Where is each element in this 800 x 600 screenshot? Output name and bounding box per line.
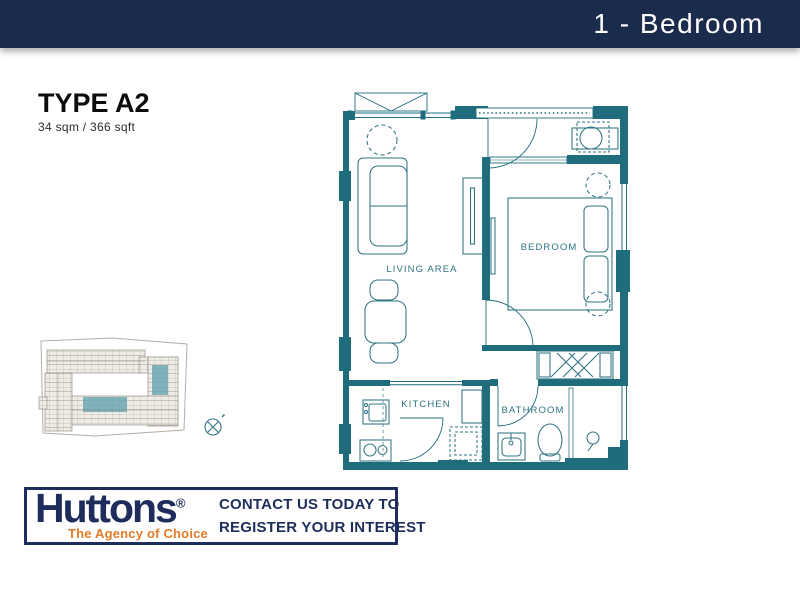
toilet [538, 424, 562, 461]
bedside-table [586, 173, 610, 197]
cta-line-1: CONTACT US TODAY TO [219, 493, 426, 516]
brand-name: Huttons® [35, 491, 211, 526]
kitchen-sink [360, 440, 391, 461]
contact-cta: CONTACT US TODAY TO REGISTER YOUR INTERE… [211, 493, 426, 540]
ceiling-fan [367, 125, 397, 155]
living-area-label: LIVING AREA [386, 264, 457, 275]
wardrobe [537, 351, 613, 379]
bedside-table [586, 292, 610, 316]
shower-screen [569, 388, 573, 460]
fridge [462, 390, 482, 423]
compass-north-icon [205, 415, 225, 436]
kitchen-door [400, 418, 443, 461]
stove [363, 400, 389, 424]
huttons-logo: Huttons® The Agency of Choice [35, 491, 211, 542]
shower [587, 432, 599, 451]
sofa [358, 158, 407, 254]
bedroom-label: BEDROOM [521, 242, 578, 253]
bathroom-sink [498, 433, 525, 460]
unit-type-block: TYPE A2 34 sqm / 366 sqft [38, 90, 150, 134]
bedroom-tv-panel [491, 218, 495, 274]
page: 1 - Bedroom TYPE A2 34 sqm / 366 sqft [0, 0, 800, 600]
brand-text: Huttons [35, 485, 176, 531]
page-title: 1 - Bedroom [593, 0, 764, 48]
ac-ledge [355, 93, 427, 111]
dressing-table [572, 122, 618, 152]
floor-plan: LIVING AREA BEDROOM KITCHEN BATHROOM [335, 82, 635, 482]
walls [339, 106, 630, 470]
kitchen-label: KITCHEN [401, 399, 450, 410]
washer-space [450, 427, 482, 460]
bathroom-label: BATHROOM [502, 405, 565, 416]
site-plan [35, 333, 230, 441]
unit-area-label: 34 sqm / 366 sqft [38, 120, 150, 134]
bed [508, 198, 612, 310]
footer-brand-box: Huttons® The Agency of Choice CONTACT US… [24, 487, 398, 545]
entry-wall [476, 108, 593, 118]
unit-type-label: TYPE A2 [38, 90, 150, 117]
dining-set [365, 280, 406, 363]
registered-mark: ® [176, 495, 186, 510]
bedroom-door [486, 300, 533, 347]
tv-console [463, 178, 483, 254]
cta-line-2: REGISTER YOUR INTEREST [219, 516, 426, 539]
header-bar: 1 - Bedroom [0, 0, 800, 48]
